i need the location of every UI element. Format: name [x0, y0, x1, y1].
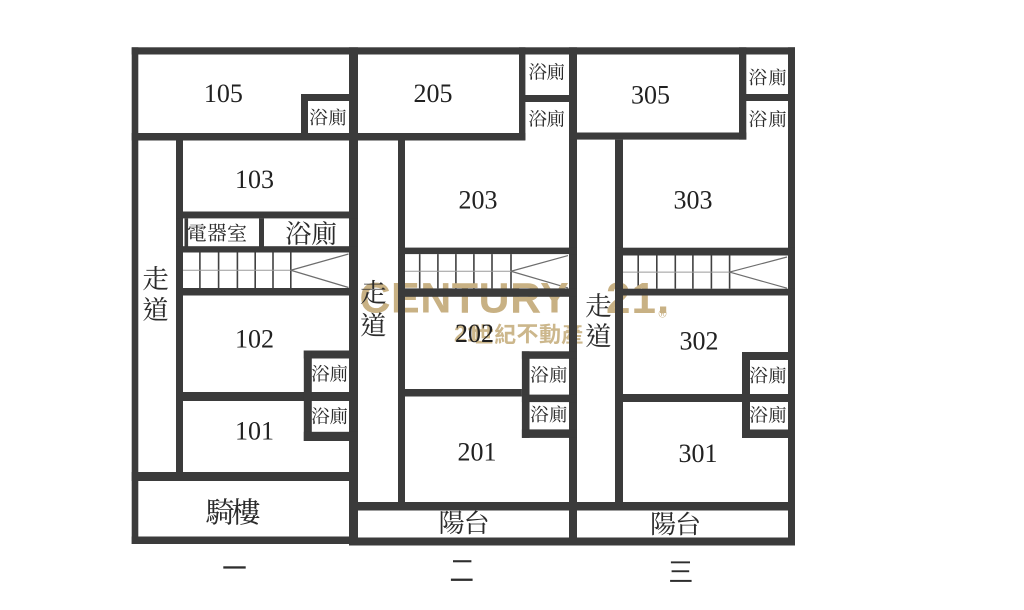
svg-text:301: 301 [679, 439, 718, 468]
svg-text:CENTURY: CENTURY [360, 275, 570, 323]
svg-text:103: 103 [235, 165, 274, 194]
svg-text:205: 205 [414, 79, 453, 108]
svg-text:102: 102 [235, 325, 274, 354]
svg-text:101: 101 [235, 417, 274, 446]
svg-text:105: 105 [204, 79, 243, 108]
svg-text:305: 305 [631, 81, 670, 110]
svg-text:302: 302 [680, 327, 719, 356]
svg-text:202: 202 [455, 319, 494, 348]
svg-text:203: 203 [459, 186, 498, 215]
svg-text:303: 303 [674, 186, 713, 215]
svg-text:®: ® [659, 309, 667, 321]
svg-text:201: 201 [458, 438, 497, 467]
